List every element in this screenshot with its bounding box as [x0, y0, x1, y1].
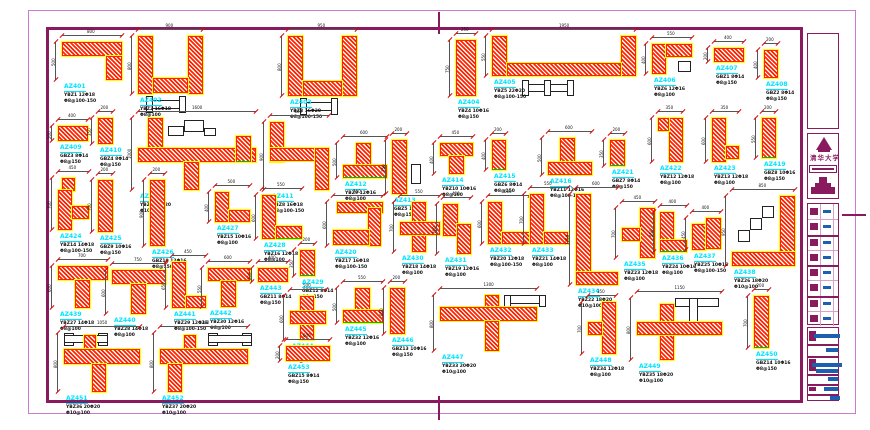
dimension-text-width: 200 — [764, 106, 772, 110]
dimension-text-height: 500 — [538, 154, 542, 162]
detail-stirrup-spec: Φ8@100 — [445, 273, 466, 278]
dimension-text-width: 1150 — [675, 286, 685, 290]
section-hatch — [457, 224, 471, 254]
section-hatch — [754, 296, 769, 348]
detail-AZ427: 500400AZ427YBZ15 10Φ16Φ8@100 — [215, 192, 250, 222]
dimension-text-width: 600 — [565, 126, 573, 130]
dimension-text-width: 200 — [494, 128, 502, 132]
cad-sheet: 800500AZ401YBZ1 12Φ18Φ8@100-150900800AZ4… — [0, 0, 870, 430]
sign-row-divider — [808, 250, 838, 251]
dimension-line-horizontal — [58, 119, 88, 120]
detail-stirrup-spec: Φ8@100 — [662, 271, 683, 276]
info-row-divider — [808, 344, 838, 346]
adjacent-member-outline — [738, 230, 750, 242]
detail-rebar-spec: YBZ24 10Φ16 — [662, 265, 696, 270]
detail-rebar-spec: GBZ4 8Φ14 — [100, 157, 128, 162]
dimension-text-height: 900 — [260, 153, 264, 161]
dimension-line-horizontal — [58, 171, 89, 172]
dimension-text-width: 400 — [669, 200, 677, 204]
dimension-text-width: 1050 — [97, 321, 107, 325]
dimension-text-width: 450 — [452, 131, 460, 135]
section-hatch — [98, 118, 113, 144]
section-hatch — [333, 230, 369, 245]
detail-stirrup-spec: Φ8@150 — [260, 301, 281, 306]
detail-label: AZ410 — [100, 148, 122, 156]
detail-label: AZ427 — [217, 226, 239, 234]
dimension-line-horizontal — [492, 133, 506, 134]
dimension-line-horizontal — [270, 115, 329, 116]
detail-label: AZ409 — [60, 145, 82, 153]
dimension-text-width: 1600 — [192, 106, 202, 110]
adjacent-member-outline — [539, 295, 546, 307]
info-row-divider — [808, 384, 838, 386]
detail-rebar-spec: GBZ9 10Φ16 — [100, 245, 131, 250]
detail-label: AZ421 — [612, 170, 634, 178]
detail-rebar-spec: YBZ17 16Φ18 — [335, 259, 369, 264]
section-hatch — [726, 146, 739, 159]
detail-label: AZ420 — [335, 250, 357, 258]
dimension-text-width: 600 — [224, 256, 232, 260]
detail-AZ402: 900800AZ402YBZ2 16Φ18Φ8@100 — [138, 36, 203, 94]
dimension-line-horizontal — [762, 111, 776, 112]
detail-rebar-spec: GBZ11 8Φ14 — [260, 295, 291, 300]
detail-rebar-spec: GBZ8 10Φ16 — [764, 171, 795, 176]
signature-mark — [823, 225, 831, 228]
adjacent-member-outline — [678, 61, 691, 72]
info-value-mark — [828, 377, 838, 381]
detail-AZ433: 550700AZ433YBZ21 14Φ18Φ8@100 — [530, 194, 568, 244]
section-hatch — [485, 295, 499, 307]
detail-label: AZ415 — [494, 174, 516, 182]
section-hatch — [62, 42, 122, 56]
detail-rebar-spec: YBZ35 18Φ20 — [639, 373, 673, 378]
dimension-text-height: 200 — [248, 272, 252, 280]
detail-AZ425: 200700AZ425GBZ9 10Φ16Φ8@150 — [98, 180, 113, 232]
detail-label: AZ419 — [764, 162, 786, 170]
section-hatch — [300, 250, 315, 276]
detail-label: AZ450 — [756, 352, 778, 360]
section-hatch — [75, 280, 90, 308]
detail-label: AZ437 — [694, 254, 716, 262]
section-hatch — [764, 50, 778, 78]
detail-rebar-spec: YBZ13 12Φ18 — [714, 175, 748, 180]
dimension-text-height: 600 — [323, 221, 327, 229]
detail-AZ449: 1150800AZ449YBZ35 18Φ20Φ10@100 — [637, 298, 722, 360]
dimension-text-height: 200 — [276, 351, 280, 359]
dimension-text-height: 800 — [627, 326, 631, 334]
dimension-text-height: 500 — [333, 158, 337, 166]
section-hatch — [456, 40, 476, 96]
detail-stirrup-spec: Φ8@100 — [345, 342, 366, 347]
detail-rebar-spec: GBZ6 8Φ14 — [494, 183, 522, 188]
section-hatch — [621, 36, 636, 76]
dimension-text-width: 200 — [613, 128, 621, 132]
detail-stirrup-spec: Φ8@150 — [764, 177, 785, 182]
dimension-text-width: 200 — [766, 38, 774, 42]
detail-AZ424: 450700AZ424YBZ14 14Φ18Φ8@100-150 — [58, 178, 89, 230]
info-row-label — [809, 387, 816, 391]
detail-label: AZ443 — [260, 286, 282, 294]
dimension-text-height: 550 — [752, 135, 756, 143]
section-hatch — [221, 281, 236, 307]
dimension-line-horizontal — [456, 33, 476, 34]
dimension-line-horizontal — [208, 261, 250, 262]
sign-row-label — [810, 284, 818, 291]
section-hatch — [106, 56, 122, 80]
signature-mark — [823, 241, 831, 244]
detail-stirrup-spec: Φ8@100 — [714, 181, 735, 186]
dimension-text-height: 750 — [382, 164, 386, 172]
detail-label: AZ425 — [100, 236, 122, 244]
dimension-text-height: 650 — [380, 308, 384, 316]
section-hatch — [58, 126, 88, 141]
section-hatch — [652, 44, 666, 74]
dimension-line-horizontal — [290, 289, 326, 290]
signature-mark — [823, 271, 831, 274]
dimension-text-width: 250 — [461, 28, 469, 32]
section-hatch — [660, 212, 674, 240]
detail-AZ404: 250750AZ404YBZ4 10Φ16Φ8@150 — [456, 40, 476, 96]
detail-stirrup-spec: Φ8@100-150 — [60, 249, 92, 254]
detail-rebar-spec: YBZ14 14Φ18 — [60, 243, 94, 248]
sign-row-label — [810, 269, 818, 276]
signature-mark — [823, 302, 831, 305]
detail-AZ407: 400200AZ407GBZ1 8Φ14Φ8@150 — [714, 48, 744, 62]
detail-rebar-spec: YBZ21 14Φ18 — [532, 257, 566, 262]
detail-stirrup-spec: Φ10@100 — [162, 411, 186, 416]
dimension-text-height: 400 — [642, 56, 646, 64]
section-hatch — [392, 140, 407, 194]
section-hatch — [492, 36, 507, 76]
dimension-text-height: 400 — [205, 204, 209, 212]
title-block: 清华大学 — [800, 27, 840, 403]
sign-row-divider — [808, 296, 838, 298]
detail-rebar-spec: YBZ20 12Φ18 — [490, 257, 524, 262]
adjacent-member-outline — [208, 335, 252, 343]
section-hatch — [84, 335, 96, 349]
adjacent-member-outline — [204, 128, 216, 136]
info-value-mark — [830, 396, 840, 400]
institute-name-microtext — [812, 168, 834, 170]
adjacent-member-outline — [689, 298, 698, 324]
signature-mark — [823, 317, 831, 320]
detail-stirrup-spec: Φ8@150 — [288, 380, 309, 385]
section-hatch — [168, 364, 182, 392]
detail-AZ443: 400200AZ443GBZ11 8Φ14Φ8@150 — [258, 268, 288, 282]
title-block-empty-panel — [807, 33, 839, 129]
info-value-mark — [816, 369, 838, 373]
detail-label: AZ452 — [162, 396, 184, 404]
detail-stirrup-spec: Φ8@100 — [217, 241, 238, 246]
dimension-text-width: 350 — [721, 106, 729, 110]
dimension-text-width: 200 — [303, 238, 311, 242]
detail-label: AZ446 — [392, 338, 414, 346]
detail-rebar-spec: YBZ12 12Φ18 — [660, 175, 694, 180]
section-hatch — [492, 140, 506, 170]
detail-stirrup-spec: Φ8@100 — [624, 277, 645, 282]
sign-row-divider — [808, 219, 838, 220]
section-hatch — [258, 268, 288, 282]
detail-AZ419: 200550AZ419GBZ8 10Φ16Φ8@150 — [762, 118, 776, 158]
dimension-text-height: 600 — [48, 284, 52, 292]
dimension-text-width: 600 — [592, 182, 600, 186]
detail-label: AZ414 — [442, 178, 464, 186]
dimension-text-height: 700 — [520, 216, 524, 224]
dimension-line-horizontal — [440, 136, 473, 137]
dimension-text-width: 200 — [101, 168, 109, 172]
sign-row-label — [810, 315, 818, 322]
info-value-mark — [824, 387, 838, 391]
sign-row-divider — [808, 235, 838, 237]
dimension-line-horizontal — [286, 339, 330, 340]
section-hatch — [712, 118, 726, 162]
section-hatch — [148, 118, 163, 150]
detail-stirrup-spec: Φ8@100 — [532, 263, 553, 268]
section-hatch — [669, 118, 683, 162]
section-hatch — [270, 148, 316, 161]
dimension-text-width: 200 — [393, 276, 401, 280]
detail-rebar-spec: YBZ5 22Φ20 — [494, 89, 525, 94]
dimension-text-width: 550 — [415, 190, 423, 194]
detail-AZ452: 1200800AZ452YBZ37 20Φ20Φ10@100 — [160, 333, 248, 392]
detail-AZ438: 850950AZ438YBZ26 18Φ20Φ10@100 — [732, 196, 795, 266]
dimension-text-width: 400 — [268, 256, 276, 260]
dimension-line-horizontal — [400, 195, 440, 196]
detail-rebar-spec: YBZ19 12Φ16 — [445, 267, 479, 272]
dimension-text-height: 500 — [333, 303, 337, 311]
section-hatch — [390, 288, 405, 334]
dimension-line-horizontal — [160, 326, 248, 327]
dimension-text-height: 1000 — [128, 149, 132, 159]
section-hatch — [131, 284, 146, 314]
detail-AZ440: 750600AZ440YBZ28 14Φ18Φ8@100 — [112, 270, 166, 314]
section-hatch — [368, 208, 381, 246]
detail-label: AZ428 — [264, 243, 286, 251]
dimension-line-horizontal — [652, 37, 692, 38]
section-hatch — [588, 322, 602, 335]
section-hatch — [150, 180, 165, 246]
detail-rebar-spec: YBZ37 20Φ20 — [162, 405, 196, 410]
detail-stirrup-spec: Φ8@100 — [402, 271, 423, 276]
dimension-text-width: 550 — [358, 276, 366, 280]
sign-row-label — [810, 300, 818, 307]
detail-stirrup-spec: Φ8@150 — [458, 115, 479, 120]
dimension-text-width: 450 — [634, 196, 642, 200]
dimension-line-horizontal — [754, 289, 769, 290]
dimension-line-horizontal — [138, 29, 203, 30]
detail-label: AZ435 — [624, 262, 646, 270]
detail-label: AZ433 — [532, 248, 554, 256]
detail-label: AZ436 — [662, 256, 684, 264]
detail-stirrup-spec: Φ8@150 — [716, 81, 737, 86]
section-hatch — [443, 204, 458, 236]
detail-label: AZ402 — [140, 98, 162, 106]
section-hatch — [215, 192, 229, 222]
section-hatch — [153, 78, 188, 93]
dimension-line-horizontal — [712, 111, 739, 112]
detail-AZ446: 200650AZ446GBZ13 10Φ16Φ8@150 — [390, 288, 405, 334]
section-hatch — [576, 272, 618, 285]
detail-stirrup-spec: Φ8@100-150 — [174, 327, 206, 332]
dimension-text-width: 600 — [360, 131, 368, 135]
section-hatch — [98, 180, 113, 232]
dimension-text-height: 200 — [704, 52, 708, 60]
detail-label: AZ447 — [442, 355, 464, 363]
dimension-line-horizontal — [392, 133, 407, 134]
detail-rebar-spec: GBZ1 8Φ14 — [716, 75, 744, 80]
detail-AZ448: 350700AZ448YBZ34 12Φ18Φ8@100 — [588, 302, 616, 354]
detail-AZ413: 200750AZ413GBZ5 10Φ16Φ8@150 — [392, 140, 407, 194]
dimension-line-horizontal — [343, 136, 387, 137]
dimension-text-height: 750 — [446, 65, 450, 73]
detail-AZ411: 800900AZ411YBZ8 16Φ18Φ8@100-150 — [270, 122, 329, 190]
detail-label: AZ407 — [716, 66, 738, 74]
detail-AZ429: 200350AZ429GBZ12 8Φ14Φ8@150 — [300, 250, 315, 276]
dimension-text-height: 700 — [612, 230, 616, 238]
institute-name-box — [809, 165, 837, 173]
detail-rebar-spec: YBZ4 10Φ16 — [458, 109, 489, 114]
dimension-text-width: 350 — [666, 106, 674, 110]
detail-AZ414: 450400AZ414YBZ10 10Φ16Φ8@100 — [440, 143, 473, 174]
dimension-line-horizontal — [548, 131, 592, 132]
dimension-text-height: 450 — [682, 231, 686, 239]
dimension-text-width: 550 — [544, 182, 552, 186]
dimension-text-height: 800 — [430, 320, 434, 328]
dimension-text-height: 800 — [278, 63, 282, 71]
detail-AZ420: 700600AZ420YBZ17 16Φ18Φ8@100-150 — [333, 202, 383, 246]
detail-rebar-spec: YBZ32 12Φ16 — [345, 336, 379, 341]
section-hatch — [560, 138, 575, 162]
section-hatch — [58, 190, 72, 230]
section-hatch — [355, 288, 370, 310]
detail-label: AZ453 — [288, 365, 310, 373]
detail-stirrup-spec: Φ8@150 — [756, 367, 777, 372]
section-hatch — [208, 268, 250, 281]
dimension-text-width: 200 — [757, 284, 765, 288]
dimension-text-height: 700 — [433, 226, 437, 234]
dimension-line-horizontal — [588, 295, 616, 296]
section-hatch — [276, 226, 302, 239]
dimension-line-horizontal — [138, 111, 256, 112]
section-hatch — [548, 162, 592, 175]
dimension-text-width: 400 — [724, 36, 732, 40]
dimension-text-height: 700 — [390, 224, 394, 232]
detail-AZ405: 1950550AZ405YBZ5 22Φ20Φ8@100-150 — [492, 36, 636, 76]
section-hatch — [666, 44, 692, 57]
detail-AZ406: 550400AZ406YBZ6 12Φ16Φ8@100 — [652, 44, 692, 74]
detail-label: AZ403 — [290, 100, 312, 108]
detail-AZ445: 550500AZ445YBZ32 12Φ16Φ8@100 — [343, 288, 383, 323]
dimension-text-height: 950 — [722, 228, 726, 236]
detail-label: AZ451 — [66, 396, 88, 404]
adjacent-member-outline — [762, 206, 774, 218]
section-hatch — [440, 307, 537, 321]
info-value-mark — [826, 348, 838, 352]
dimension-text-height: 350 — [290, 260, 294, 268]
dimension-line-horizontal — [150, 173, 165, 174]
detail-label: AZ406 — [654, 78, 676, 86]
detail-AZ415: 200400AZ415GBZ6 8Φ14Φ8@150 — [492, 140, 506, 170]
detail-stirrup-spec: Φ8@100 — [590, 373, 611, 378]
detail-stirrup-spec: Φ8@100-150 — [490, 263, 522, 268]
dimension-line-horizontal — [443, 197, 471, 198]
dimension-text-width: 200 — [153, 168, 161, 172]
dimension-text-height: 600 — [280, 315, 284, 323]
detail-label: AZ422 — [660, 166, 682, 174]
dimension-line-horizontal — [258, 261, 288, 262]
dimension-text-height: 550 — [650, 229, 654, 237]
dimension-text-width: 550 — [667, 32, 675, 36]
adjacent-member-outline — [504, 295, 511, 307]
section-hatch — [172, 262, 186, 308]
section-hatch — [188, 36, 203, 94]
dimension-text-height: 700 — [744, 319, 748, 327]
dimension-text-width: 400 — [68, 114, 76, 118]
section-hatch — [488, 202, 502, 244]
section-hatch — [288, 36, 303, 96]
detail-label: AZ439 — [60, 312, 82, 320]
dimension-line-horizontal — [390, 281, 405, 282]
section-hatch — [485, 321, 499, 351]
dimension-text-width: 350 — [597, 290, 605, 294]
dimension-text-height: 600 — [102, 289, 106, 297]
dimension-line-horizontal — [215, 185, 250, 186]
detail-label: AZ448 — [590, 358, 612, 366]
dimension-line-horizontal — [64, 326, 140, 327]
dimension-text-height: 650 — [162, 282, 166, 290]
section-hatch — [343, 310, 383, 323]
signature-mark — [823, 286, 831, 289]
detail-rebar-spec: GBZ15 8Φ14 — [288, 374, 319, 379]
sign-row-label — [810, 208, 818, 215]
sign-row-label — [810, 223, 818, 230]
detail-rebar-spec: YBZ36 20Φ20 — [66, 405, 100, 410]
detail-rebar-spec: YBZ23 12Φ18 — [624, 271, 658, 276]
dimension-line-horizontal — [262, 188, 302, 189]
dimension-text-width: 500 — [303, 284, 311, 288]
section-hatch — [92, 364, 106, 392]
info-row-divider — [808, 356, 838, 358]
detail-AZ421: 200350AZ421GBZ7 8Φ14Φ8@150 — [610, 140, 625, 166]
detail-rebar-spec: YBZ15 10Φ16 — [217, 235, 251, 240]
detail-label: AZ431 — [445, 258, 467, 266]
section-hatch — [706, 218, 721, 249]
section-hatch — [449, 156, 464, 174]
dimension-text-height: 400 — [430, 156, 434, 164]
detail-AZ439: 700600AZ439YBZ27 14Φ18Φ8@100 — [58, 266, 108, 308]
detail-AZ442: 600550AZ442YBZ30 12Φ16Φ8@100 — [208, 268, 250, 307]
signature-table — [807, 203, 839, 325]
detail-AZ423: 350600AZ423YBZ13 12Φ18Φ8@100 — [712, 118, 739, 162]
dimension-line-horizontal — [610, 133, 625, 134]
detail-AZ412: 600500AZ412YBZ9 12Φ16Φ8@100 — [343, 143, 387, 178]
section-hatch — [262, 195, 276, 239]
adjacent-member-outline — [544, 80, 551, 96]
stamp-base — [811, 187, 835, 194]
detail-label: AZ424 — [60, 234, 82, 242]
section-hatch — [602, 302, 616, 354]
dimension-text-height: 200 — [48, 131, 52, 139]
dimension-text-height: 400 — [754, 61, 758, 69]
dimension-line-horizontal — [492, 29, 636, 30]
sign-row-label — [810, 254, 818, 261]
detail-rebar-spec: GBZ2 8Φ14 — [766, 91, 794, 96]
section-hatch — [160, 349, 248, 364]
dimension-text-width: 450 — [69, 166, 77, 170]
dimension-text-width: 800 — [295, 110, 303, 114]
dimension-line-horizontal — [530, 187, 568, 188]
detail-label: AZ405 — [494, 80, 516, 88]
